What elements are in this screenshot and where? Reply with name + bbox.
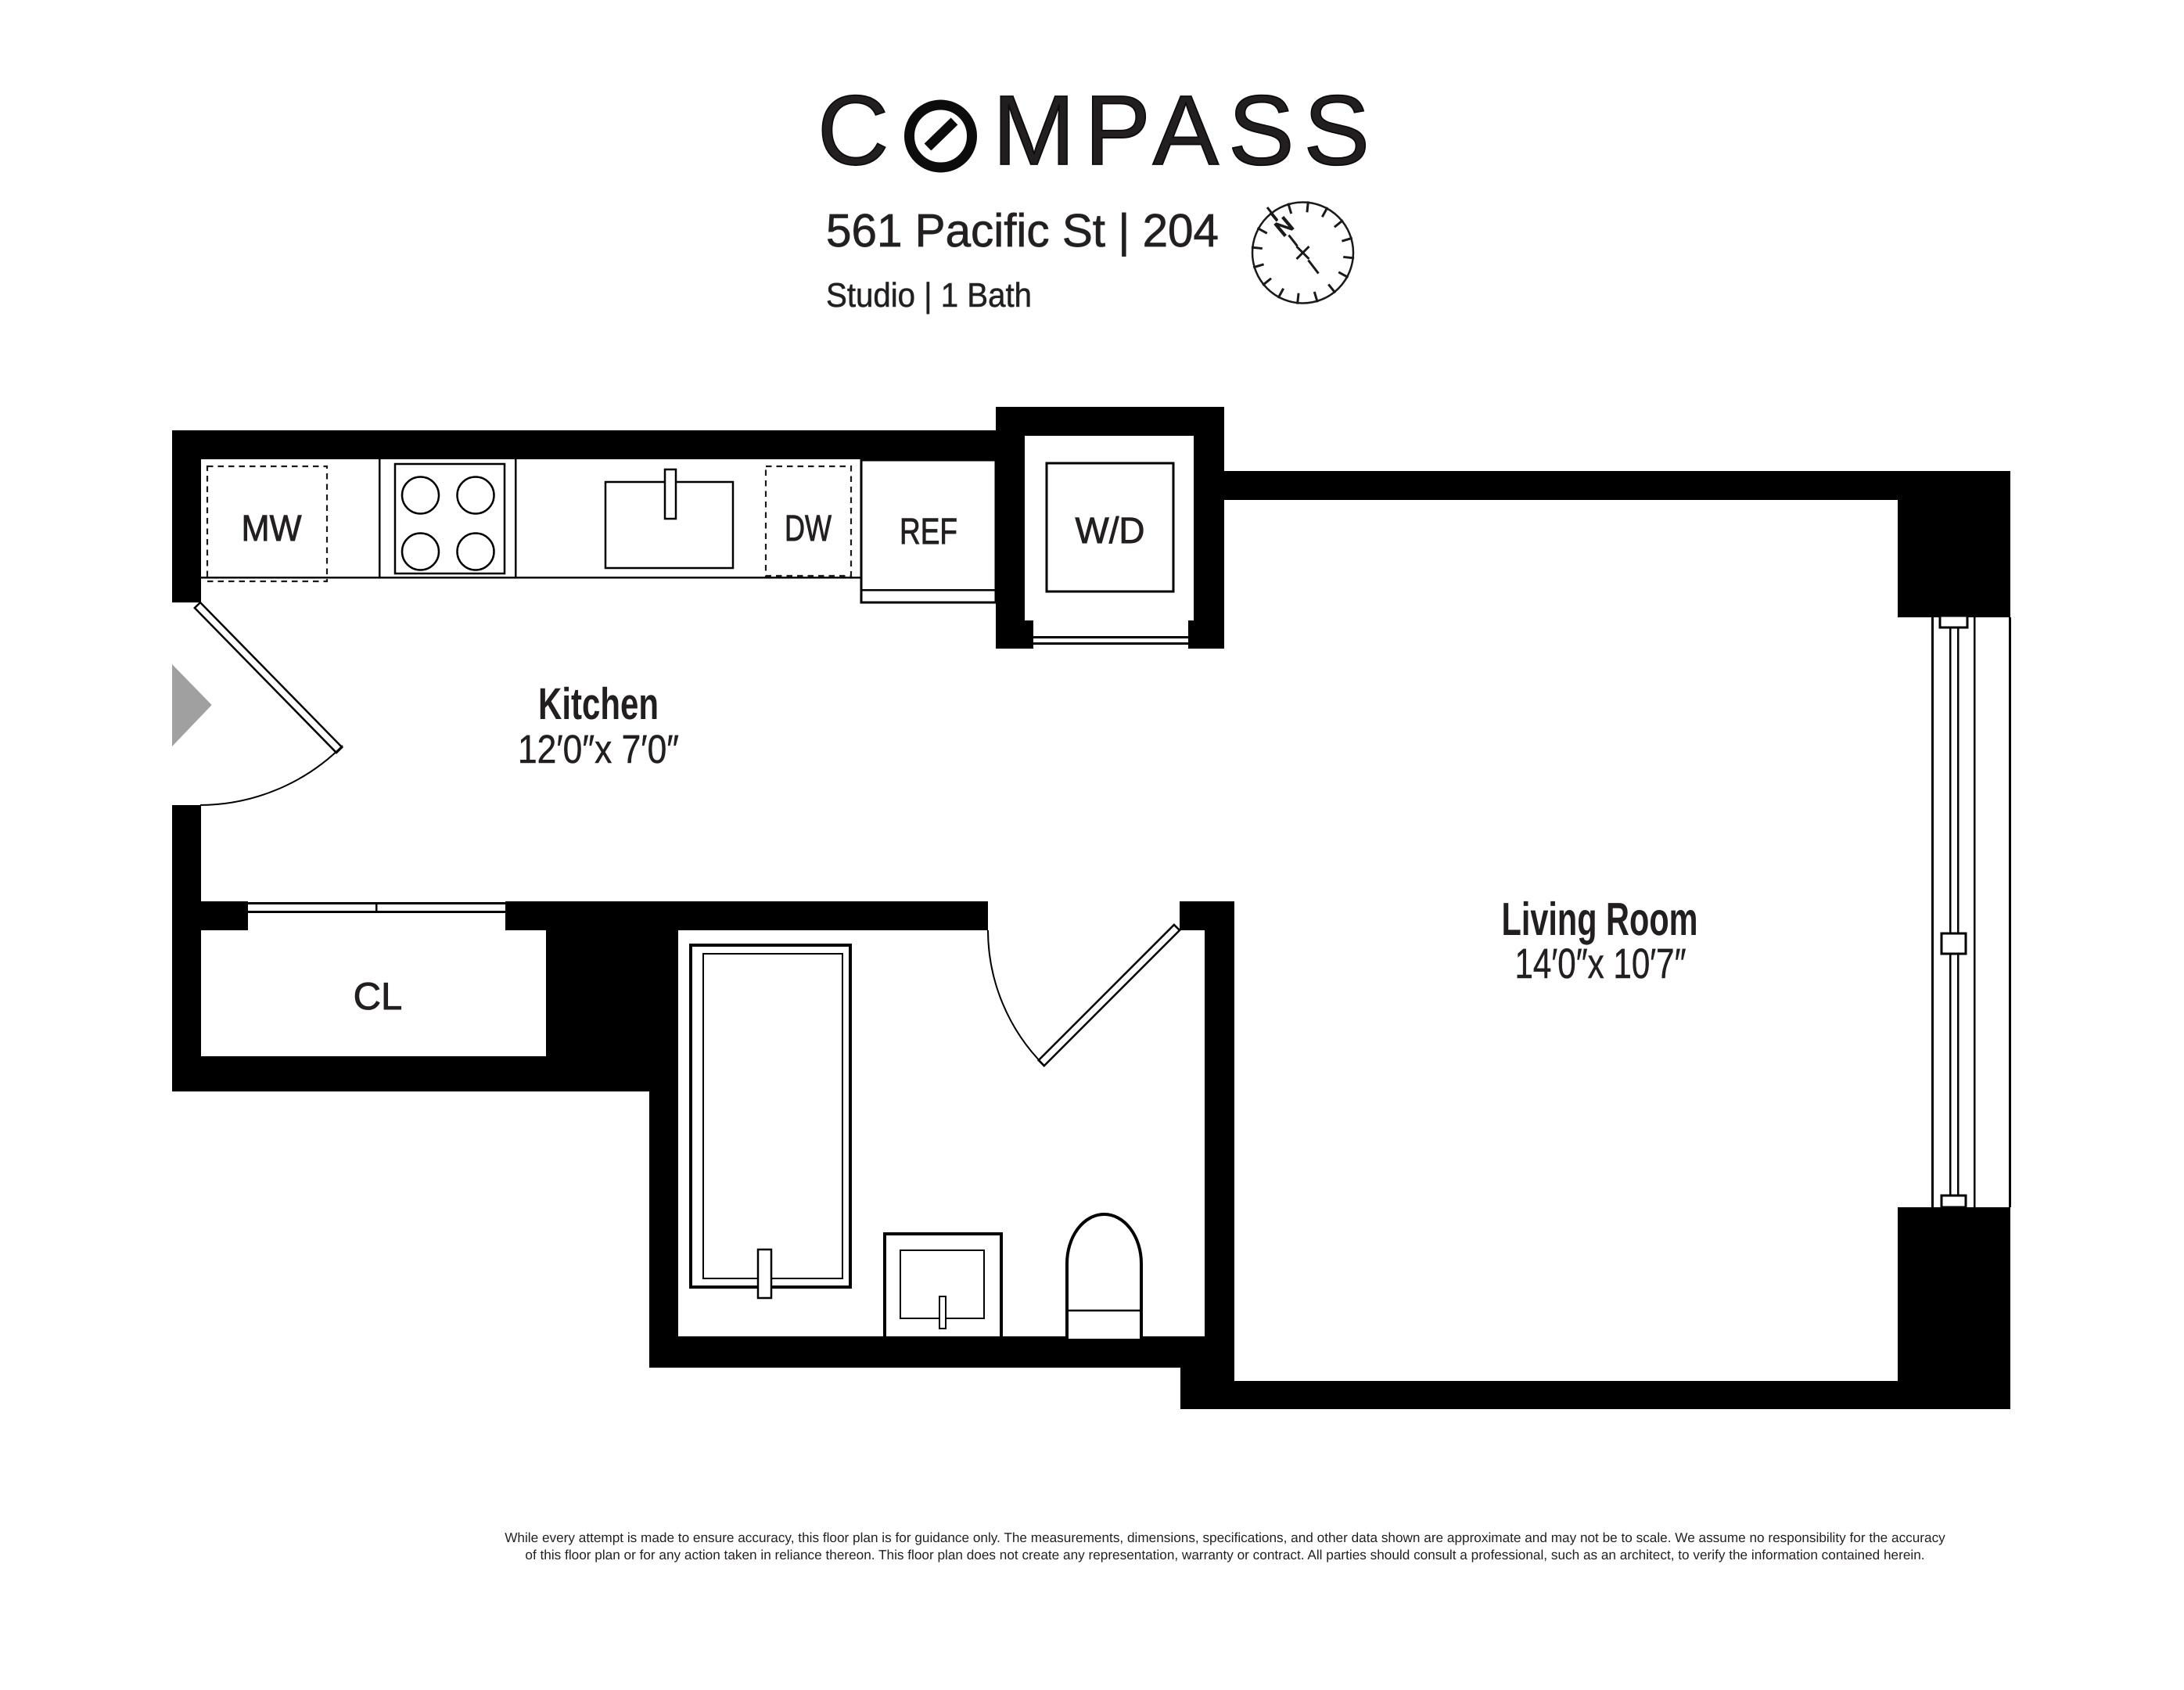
svg-text:Studio | 1 Bath: Studio | 1 Bath [826,277,1032,315]
svg-text:C: C [817,74,889,185]
svg-text:14′0″x 10′7″: 14′0″x 10′7″ [1515,940,1686,987]
svg-text:Living Room: Living Room [1502,893,1698,945]
svg-text:CL: CL [354,976,403,1018]
svg-text:W/D: W/D [1076,509,1145,551]
svg-text:REF: REF [900,510,957,552]
svg-text:MPASS: MPASS [993,74,1370,185]
svg-text:DW: DW [785,507,832,548]
svg-text:12′0″x 7′0″: 12′0″x 7′0″ [518,727,679,771]
svg-text:MW: MW [242,507,303,548]
svg-text:While every attempt is made to: While every attempt is made to ensure ac… [505,1530,1945,1545]
svg-text:of this floor plan or for any: of this floor plan or for any action tak… [525,1547,1924,1562]
svg-text:Kitchen: Kitchen [538,679,659,729]
svg-text:561 Pacific St | 204: 561 Pacific St | 204 [826,204,1219,257]
